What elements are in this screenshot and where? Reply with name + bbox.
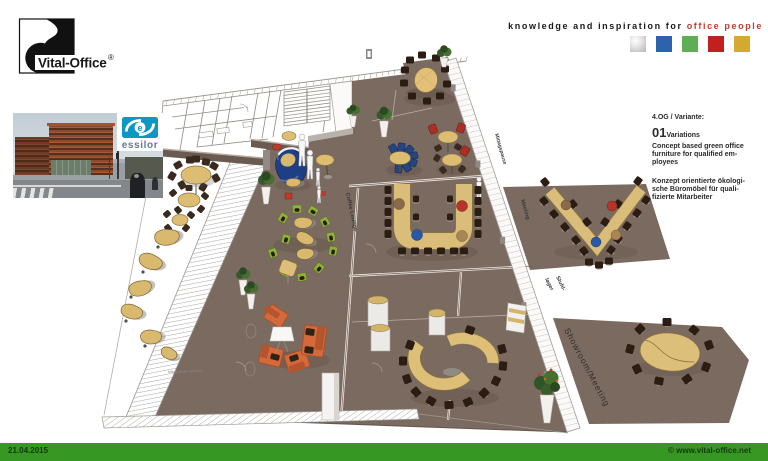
svg-text:e: e	[137, 123, 142, 133]
svg-text:®: ®	[108, 53, 114, 62]
svg-text:lager: lager	[543, 277, 555, 292]
svg-text:essilor: essilor	[122, 140, 158, 151]
svg-text:Mittagspause: Mittagspause	[493, 133, 508, 166]
svg-text:Vital-Office: Vital-Office	[38, 56, 107, 71]
svg-text:Stuhl-: Stuhl-	[554, 275, 566, 292]
